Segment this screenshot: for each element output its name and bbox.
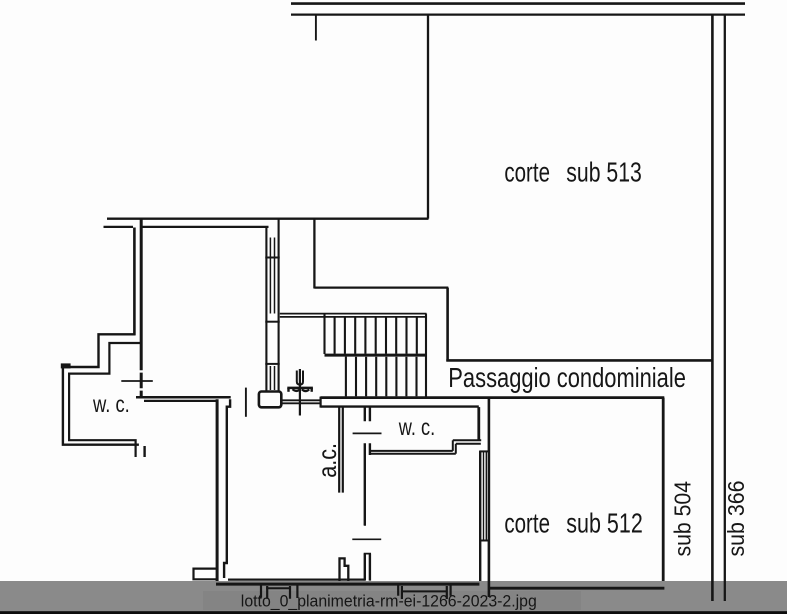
svg-text:sub 512: sub 512 bbox=[566, 507, 643, 538]
svg-text:w. c.: w. c. bbox=[398, 414, 435, 440]
svg-text:lotto_0_planimetria-rm-ei-1266: lotto_0_planimetria-rm-ei-1266-2023-2.jp… bbox=[241, 592, 537, 610]
svg-text:w. c.: w. c. bbox=[92, 391, 130, 417]
svg-text:a.c.: a.c. bbox=[312, 443, 342, 478]
svg-text:corte: corte bbox=[504, 507, 550, 538]
svg-text:corte: corte bbox=[504, 156, 550, 187]
svg-text:Passaggio condominiale: Passaggio condominiale bbox=[448, 362, 686, 393]
svg-text:sub 366: sub 366 bbox=[723, 481, 749, 557]
svg-text:sub 504: sub 504 bbox=[670, 481, 696, 557]
svg-text:sub 513: sub 513 bbox=[566, 156, 642, 187]
